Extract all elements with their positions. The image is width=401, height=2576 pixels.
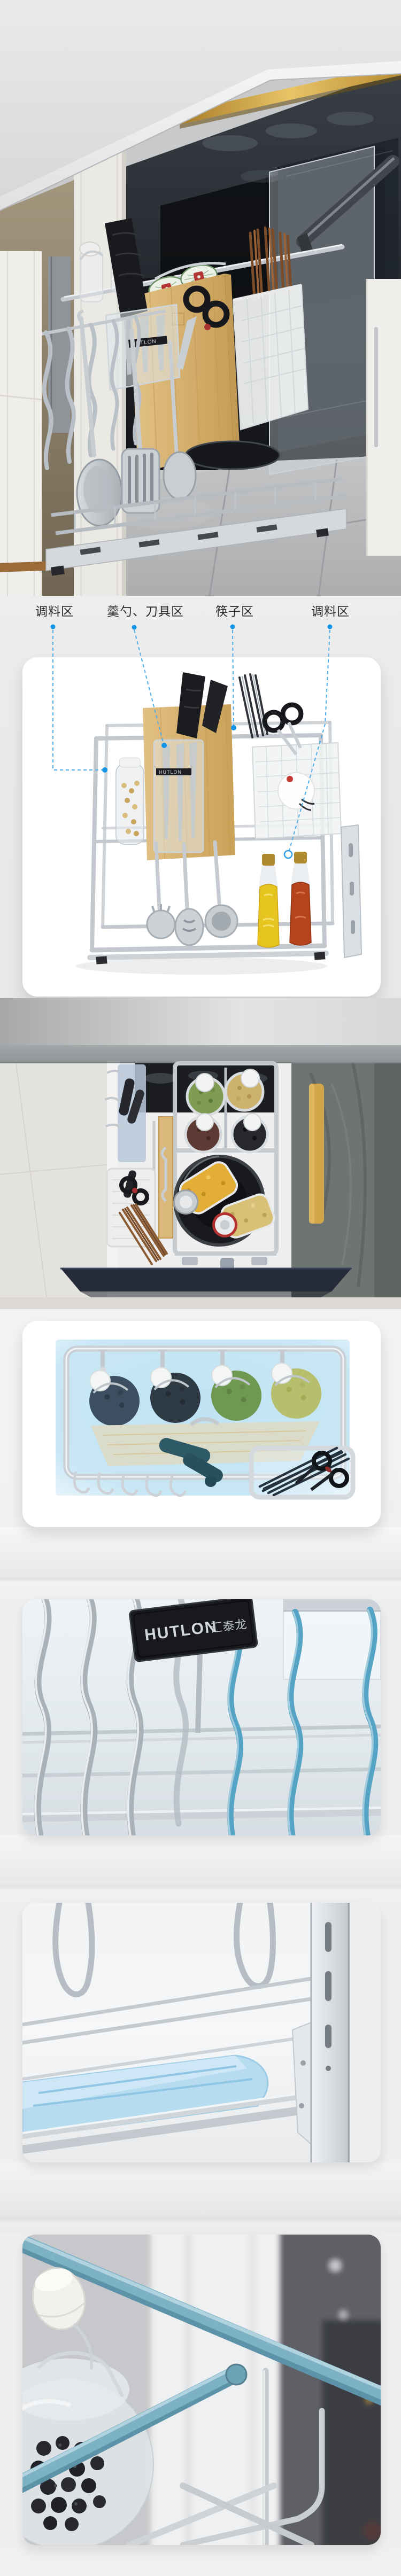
product-card-front-view: HUTLON (22, 657, 381, 997)
product-card-xray-view (22, 1321, 381, 1527)
xray-chopstick-basket (251, 1448, 353, 1497)
navy-drawer-front (60, 1268, 352, 1297)
right-cabinet-door (367, 279, 401, 556)
mesh-basket (252, 743, 341, 839)
mount-bracket-b (251, 1257, 267, 1265)
rack-product-image: HUTLON (22, 657, 381, 997)
block-brand-text: HUTLON (159, 769, 182, 775)
photo-kitchen-pullout-image: HUTLON (0, 0, 401, 596)
oil-bottle-yellow (258, 854, 279, 947)
door-handle (374, 327, 378, 447)
chopsticks-bundle (240, 674, 267, 737)
zone-label-seasoning-1: 调料区 (35, 604, 74, 618)
blurred-top-band (0, 998, 401, 1045)
tube-joint-image (22, 2235, 381, 2545)
counter-edge-band (0, 1045, 401, 1063)
bean-jar (116, 758, 144, 844)
floor-bottom-strip (0, 1297, 401, 1309)
cabinet-knob (329, 2260, 341, 2271)
bottom-margin (0, 2545, 401, 2576)
acrylic-knife-block: HUTLON (154, 740, 203, 852)
basket-topdown (105, 1063, 276, 1272)
gap-gradient-b (0, 1835, 401, 1903)
xray-product-image (22, 1321, 381, 1527)
photo-tube-joint-closeup (22, 2235, 381, 2545)
photo-tray-corner-closeup (22, 1903, 381, 2162)
jar-red-beans (186, 1114, 221, 1152)
photo-topdown-drawer (0, 998, 401, 1309)
product-detail-page: HUTLON (0, 0, 401, 2576)
gap-gradient-c (0, 2162, 401, 2235)
plate-post (198, 1653, 200, 1733)
tube-weld-joint (226, 2364, 246, 2385)
vinegar-bottle-red (290, 852, 311, 945)
jar-black-beans (232, 1114, 267, 1152)
mount-bracket-a (182, 1257, 198, 1265)
side-bracket (341, 825, 361, 958)
cabinet-frame-right (276, 1063, 291, 1240)
zone-label-chopsticks: 筷子区 (215, 604, 254, 618)
post-side-face (350, 1903, 381, 2162)
photo-kitchen-pullout-scene: HUTLON (0, 0, 401, 596)
zone-label-seasoning-2: 调料区 (311, 604, 350, 618)
spaghetti-server (147, 910, 175, 938)
photo-topdown-image (0, 998, 401, 1309)
chopstick-basket (233, 285, 308, 430)
chrome-post (311, 1903, 381, 2162)
hook-closeup-image: HUTLON 汇泰龙 (22, 1599, 381, 1835)
product-shadow (76, 958, 327, 975)
cutting-board-topdown (154, 1117, 173, 1238)
long-spoon (164, 452, 196, 499)
tray-corner-image (22, 1903, 381, 2162)
gap-gradient-a (0, 1527, 401, 1599)
zone-label-ladle-knife: 羹勺、刀具区 (107, 604, 184, 618)
photo-hook-closeup: HUTLON 汇泰龙 (22, 1599, 381, 1835)
slotted-spoon (175, 909, 203, 945)
